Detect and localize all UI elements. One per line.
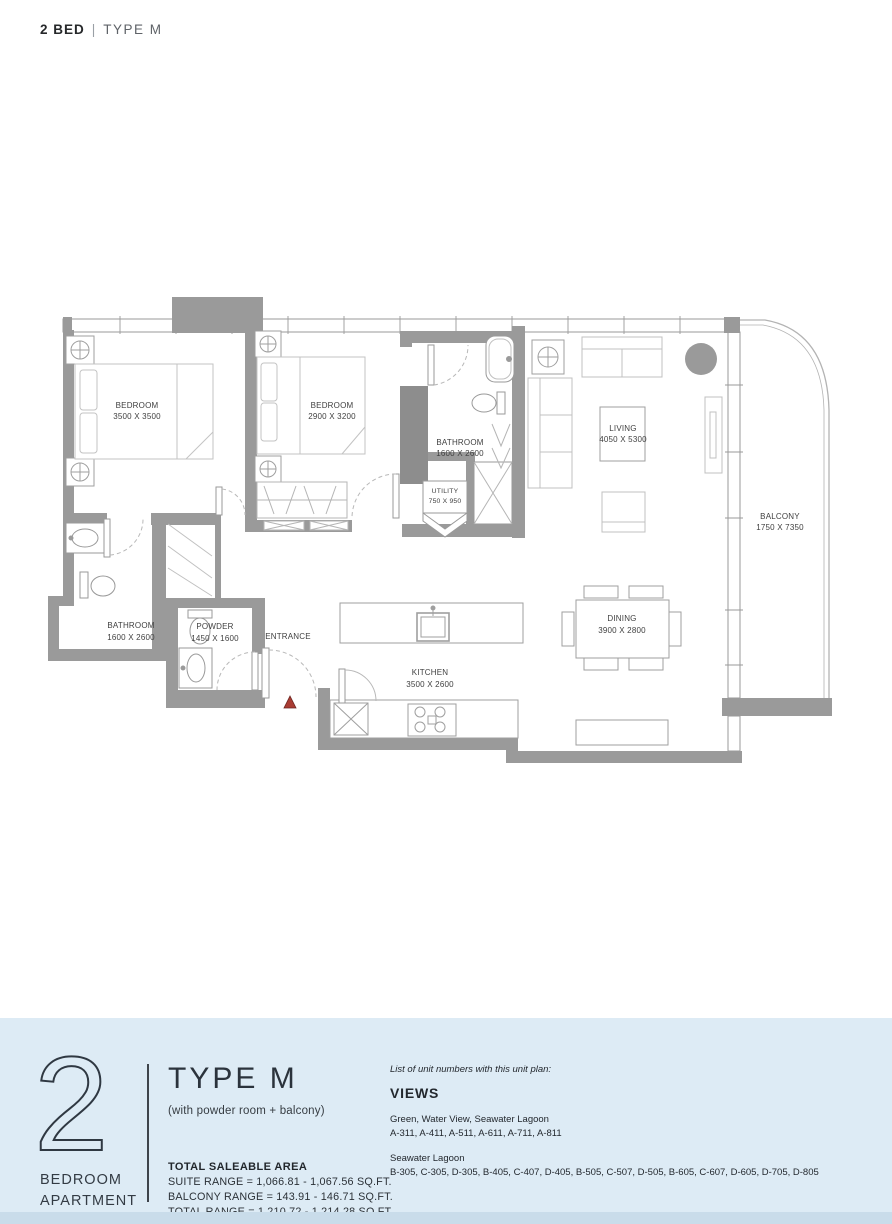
views-group2-title: Seawater Lagoon	[390, 1153, 860, 1164]
area-heading: TOTAL SALEABLE AREA	[168, 1161, 393, 1173]
balcony-outline	[737, 320, 829, 698]
svg-text:BEDROOM: BEDROOM	[311, 401, 354, 410]
label-entrance: ENTRANCE	[265, 632, 311, 641]
svg-text:1600 X 2600: 1600 X 2600	[107, 633, 155, 642]
svg-text:POWDER: POWDER	[196, 622, 233, 631]
type-title: TYPE M	[168, 1062, 393, 1096]
area-balcony-range: BALCONY RANGE = 143.91 - 146.71 SQ.FT.	[168, 1191, 393, 1203]
svg-text:3900 X 2800: 3900 X 2800	[598, 626, 646, 635]
svg-text:2900 X 3200: 2900 X 3200	[308, 412, 356, 421]
sideboard	[576, 720, 668, 745]
views-group1-units: A-311, A-411, A-511, A-611, A-711, A-811	[390, 1128, 860, 1139]
svg-text:UTILITY: UTILITY	[432, 488, 459, 495]
svg-text:DINING: DINING	[607, 614, 636, 623]
svg-text:ENTRANCE: ENTRANCE	[265, 632, 311, 641]
linen-closet	[168, 524, 212, 596]
svg-text:4050 X 5300: 4050 X 5300	[599, 435, 647, 444]
type-block: TYPE M (with powder room + balcony) TOTA…	[168, 1062, 393, 1218]
type-subtitle: (with powder room + balcony)	[168, 1105, 393, 1117]
svg-text:BATHROOM: BATHROOM	[107, 621, 154, 630]
service-duct	[400, 386, 428, 484]
svg-text:LIVING: LIVING	[609, 424, 636, 433]
kitchen-door-swing	[345, 670, 376, 701]
views-group1-title: Green, Water View, Seawater Lagoon	[390, 1114, 860, 1125]
kitchen-island	[340, 603, 523, 643]
label-bathroom-main: BATHROOM 1600 X 2600	[107, 621, 155, 642]
plant	[685, 343, 717, 375]
svg-text:BATHROOM: BATHROOM	[436, 438, 483, 447]
label-bathroom-ensuite: BATHROOM 1600 X 2600	[436, 438, 484, 458]
bathroom-ensuite-fixtures	[472, 336, 514, 524]
svg-text:BALCONY: BALCONY	[760, 512, 800, 521]
svg-text:KITCHEN: KITCHEN	[412, 668, 449, 677]
svg-text:3500 X 2600: 3500 X 2600	[406, 680, 454, 689]
unit-type-label-line2: APARTMENT	[40, 1191, 137, 1212]
unit-type-label: BEDROOM APARTMENT	[40, 1170, 137, 1212]
area-suite-range: SUITE RANGE = 1,066.81 - 1,067.56 SQ.FT.	[168, 1176, 393, 1188]
svg-text:1600 X 2600: 1600 X 2600	[436, 449, 484, 458]
views-block: List of unit numbers with this unit plan…	[390, 1064, 860, 1178]
vertical-divider	[147, 1064, 149, 1202]
views-heading: VIEWS	[390, 1085, 860, 1101]
views-intro: List of unit numbers with this unit plan…	[390, 1064, 860, 1075]
entrance-marker	[284, 696, 296, 708]
kitchen-counter	[330, 700, 518, 738]
brochure-page: 2 BED|TYPE M	[0, 0, 892, 1224]
svg-text:3500 X 3500: 3500 X 3500	[113, 412, 161, 421]
footer-panel: 2 BEDROOM APARTMENT TYPE M (with powder …	[0, 1018, 892, 1224]
wardrobe	[257, 482, 348, 530]
svg-text:1450 X 1600: 1450 X 1600	[191, 634, 239, 643]
label-balcony: BALCONY 1750 X 7350	[756, 512, 804, 532]
views-group2-units: B-305, C-305, D-305, B-405, C-407, D-405…	[390, 1167, 860, 1178]
unit-count-numeral: 2	[34, 1038, 109, 1172]
bed-1	[66, 336, 213, 486]
svg-text:1750 X 7350: 1750 X 7350	[756, 523, 804, 532]
footer-strip	[0, 1212, 892, 1224]
unit-type-label-line1: BEDROOM	[40, 1170, 137, 1191]
svg-text:750 X 950: 750 X 950	[429, 498, 462, 505]
label-kitchen: KITCHEN 3500 X 2600	[406, 668, 454, 689]
svg-text:BEDROOM: BEDROOM	[116, 401, 159, 410]
